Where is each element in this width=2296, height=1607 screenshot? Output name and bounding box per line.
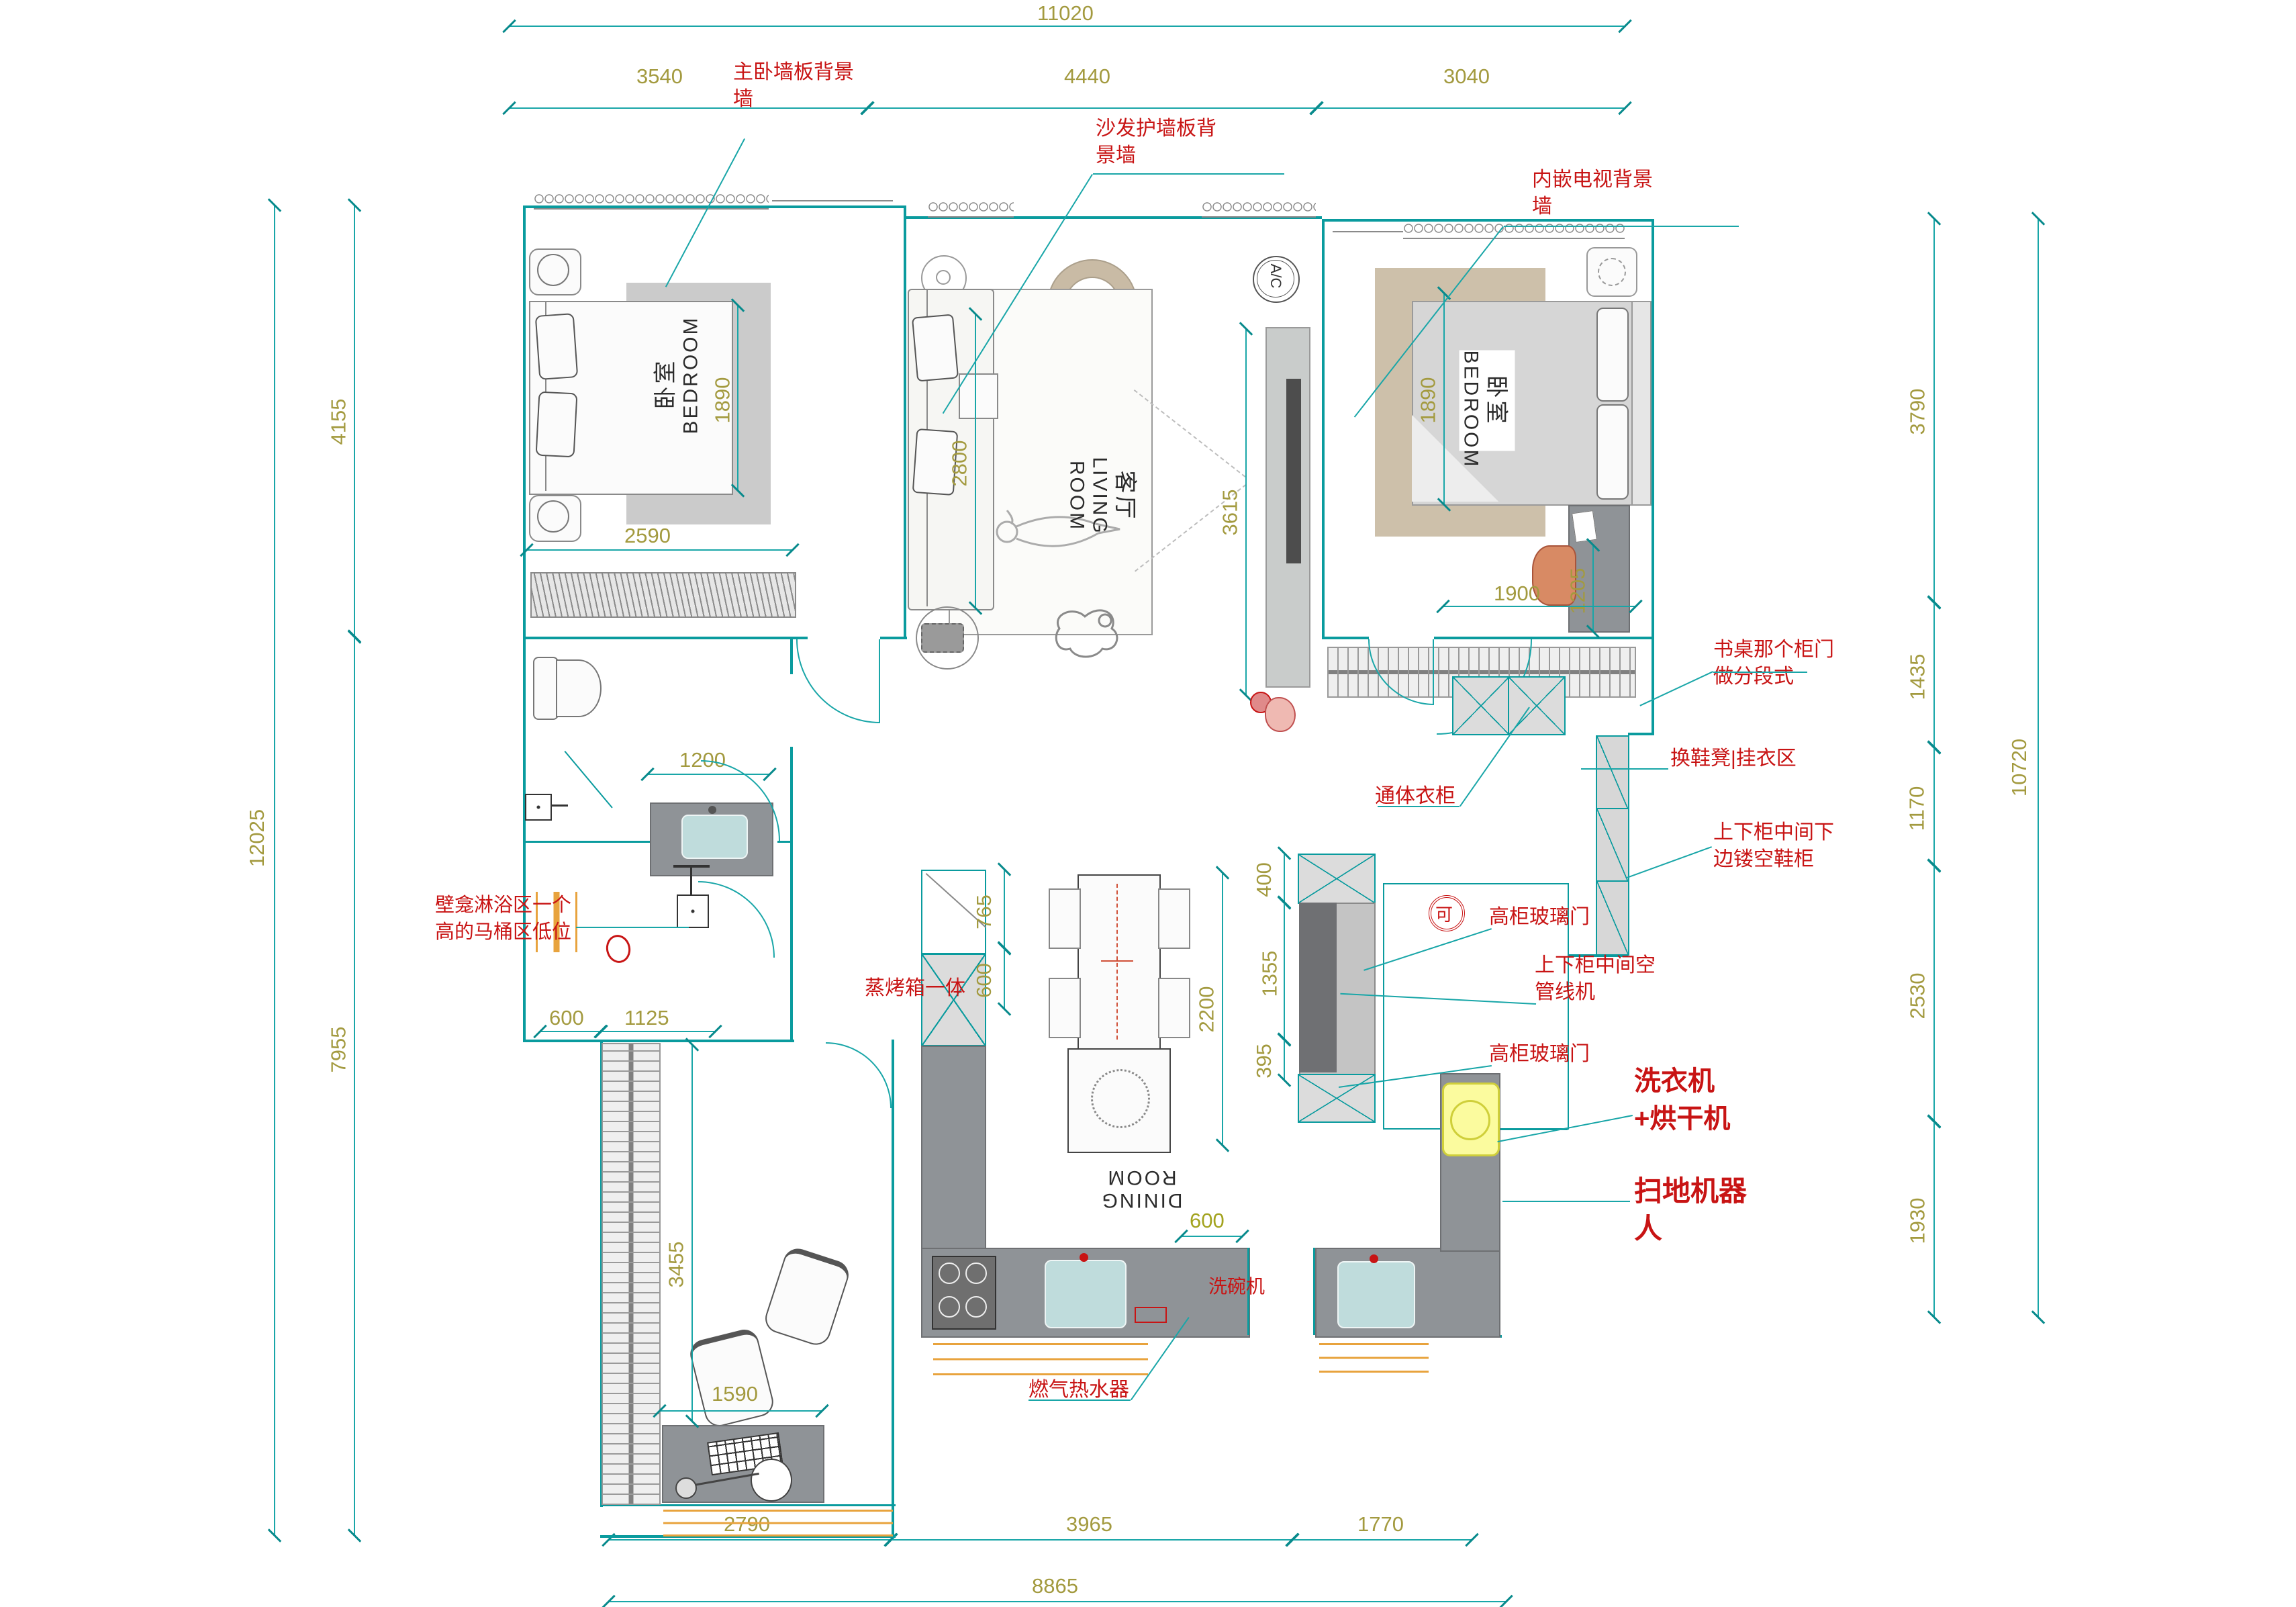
dim-10720: 10720: [2007, 739, 2031, 796]
door-arc-shower-room: [698, 881, 775, 958]
dim-3455: 3455: [664, 1242, 688, 1288]
burner: [939, 1262, 960, 1284]
leader-master-wall: [665, 138, 745, 287]
dim-line-765: [1004, 870, 1005, 948]
callout-tv-wall: 内嵌电视背景墙: [1532, 167, 1656, 220]
wall-segment: [523, 1040, 794, 1042]
sofa-pillow: [912, 314, 959, 381]
dim-395: 395: [1252, 1044, 1276, 1078]
door-arc-study: [826, 1042, 892, 1108]
pillow: [535, 313, 579, 380]
dim-line-2590: [527, 549, 792, 551]
dim-8865: 8865: [1032, 1574, 1078, 1598]
leader-underline: [1029, 1399, 1131, 1401]
tv-screen: [1286, 379, 1301, 563]
wall-segment: [523, 637, 808, 639]
leader-robot: [1502, 1201, 1630, 1202]
dim-1170: 1170: [1905, 786, 1929, 831]
dim-line-1435: [1933, 602, 1935, 747]
wall-segment: [790, 639, 793, 674]
dim-line-3615: [1245, 329, 1247, 695]
dim-line-total-top: [510, 26, 1625, 27]
dining-chair: [1049, 888, 1081, 949]
table-lamp-icon: [1598, 258, 1626, 286]
ac-text: A/C: [1267, 261, 1284, 291]
plant-icon: [1091, 1069, 1150, 1128]
shower2-arm: [690, 868, 692, 894]
pillow: [1596, 404, 1629, 500]
washing-machine-drum: [1450, 1100, 1490, 1140]
leader-underline: [1713, 672, 1807, 673]
floor-lamp: [921, 623, 964, 653]
dim-11020: 11020: [1037, 1, 1094, 26]
desk-lamp-base: [675, 1477, 697, 1499]
callout-master-wall: 主卧墙板背景墙: [733, 59, 857, 113]
room-label-bedroom2: 卧室 BEDROOM: [1460, 351, 1515, 451]
dim-line-1355: [1284, 903, 1285, 1040]
tall-cabinet-glass-top: [1298, 854, 1376, 904]
office-chair: [761, 1245, 852, 1349]
bed2-headboard: [1631, 301, 1652, 506]
dim-2590: 2590: [624, 524, 671, 548]
pillow: [1596, 308, 1629, 402]
toilet-bowl: [556, 659, 602, 717]
wall-segment: [892, 1040, 894, 1538]
dim-3040: 3040: [1443, 64, 1490, 89]
wall-segment: [777, 841, 792, 843]
callout-gas-heater: 燃气热水器: [1029, 1373, 1129, 1402]
dim-line-1170: [1933, 747, 1935, 866]
window-kitchen: [933, 1343, 1148, 1375]
shoe-cabinet-tall: [1596, 735, 1629, 811]
callout-dishwasher: 洗碗机: [1208, 1272, 1265, 1299]
dim-2530: 2530: [1905, 973, 1929, 1019]
leader-shoe-cabinet: [1626, 846, 1712, 878]
dim-1770: 1770: [1357, 1512, 1404, 1536]
ceiling-fan-hub: [936, 270, 951, 285]
dining-table: [1078, 874, 1161, 1052]
leader-underline: [1378, 806, 1460, 807]
dim-1435: 1435: [1905, 654, 1929, 700]
dim-400: 400: [1252, 862, 1276, 897]
door-arc-bathroom: [701, 760, 780, 841]
leader-desk-cabinet: [1639, 671, 1713, 706]
dim-600a: 600: [549, 1006, 584, 1030]
shoe-cabinet-tall: [1596, 808, 1629, 883]
curtain-master: [534, 192, 769, 210]
room-label-master-zh: 卧室: [647, 334, 680, 434]
shower-corner-wall: [564, 751, 612, 809]
dim-1590: 1590: [712, 1382, 758, 1406]
kitchen-sink: [1045, 1260, 1127, 1328]
room-label-master-en: BEDROOM: [680, 334, 703, 434]
kitchen-column-lower: [921, 1046, 986, 1250]
burner: [965, 1296, 987, 1318]
dim-line-1770: [1292, 1539, 1472, 1541]
dim-line-12025: [274, 205, 275, 1535]
dim-line-8865: [609, 1601, 1506, 1602]
shoe-cabinet-tall: [1596, 880, 1629, 956]
curtain-arrow: [772, 200, 893, 201]
dim-1930: 1930: [1905, 1198, 1929, 1244]
room-label-dining: DINING ROOM: [1074, 1166, 1208, 1211]
wall-segment: [1628, 733, 1654, 735]
door-leaf: [1433, 639, 1434, 704]
toilet-tank: [533, 657, 559, 720]
dim-1205: 1205: [1566, 568, 1590, 614]
callout-desk-cabinet: 书桌那个柜门做分段式: [1713, 637, 1837, 690]
door-arc-master: [796, 639, 880, 723]
balcony-sink: [1337, 1261, 1415, 1328]
dim-line-600a: [540, 1031, 601, 1032]
callout-shower-niche: 壁龛淋浴区一个高的马桶区低位: [435, 892, 577, 946]
dim-4440: 4440: [1064, 64, 1110, 89]
burner: [965, 1262, 987, 1284]
dim-600b: 600: [972, 963, 996, 998]
curtain-arrow: [1333, 231, 1403, 232]
dim-7955: 7955: [326, 1027, 350, 1073]
curtain-living-left: [928, 200, 1014, 218]
wall-segment: [904, 205, 906, 639]
dim-line-600c: [1182, 1236, 1242, 1237]
figure-red-body: [1265, 697, 1296, 732]
shoe-bench-cabinet: [1452, 676, 1510, 735]
dim-line-1590: [660, 1410, 822, 1412]
dim-3615: 3615: [1218, 490, 1242, 536]
room-label-living: 客厅 LIVING ROOM: [1065, 436, 1144, 557]
dim-4155: 4155: [326, 399, 350, 445]
wardrobe-study-hangers: [602, 1043, 661, 1505]
dim-line-395: [1284, 1040, 1285, 1080]
desk-paper: [1572, 510, 1597, 543]
room-label-master: 卧室 BEDROOM: [647, 334, 703, 434]
dim-line-600b: [1004, 948, 1005, 1009]
dim-line-7955: [354, 637, 355, 1535]
dining-chair: [1049, 978, 1081, 1038]
door-leaf: [879, 639, 880, 722]
dim-1125: 1125: [624, 1006, 669, 1030]
dim-line-400: [1284, 854, 1285, 903]
room-label-living-en: LIVING ROOM: [1065, 436, 1111, 557]
burner: [939, 1296, 960, 1318]
dim-1890b: 1890: [1416, 377, 1440, 424]
callout-bench: 换鞋凳|挂衣区: [1670, 741, 1797, 771]
dim-1900: 1900: [1494, 582, 1540, 606]
curtain-living-right: [1202, 200, 1316, 218]
leader-underline: [1093, 173, 1284, 175]
callout-glass-door-bottom: 高柜玻璃门: [1489, 1037, 1590, 1066]
dim-line-4440: [867, 107, 1317, 109]
dim-600c: 600: [1190, 1209, 1225, 1233]
desk-lamp-shade: [751, 1459, 792, 1502]
callout-glass-door-top: 高柜玻璃门: [1489, 900, 1590, 929]
floor-plan: 11020 3540 4440 3040 4155 7955 12025 379…: [0, 0, 2296, 1607]
dim-1355: 1355: [1257, 951, 1282, 997]
dim-line-1205: [1592, 545, 1594, 631]
wall-segment: [1322, 637, 1369, 639]
callout-pipe-machine: 上下柜中间空管线机: [1535, 952, 1659, 1006]
table-center-cross: [1101, 960, 1133, 962]
dim-line-3965: [891, 1539, 1292, 1541]
office-chair: [687, 1326, 777, 1429]
leader-underline: [1504, 226, 1739, 227]
shower-head-icon: [525, 794, 552, 821]
dim-line-1890b: [1443, 293, 1445, 504]
dim-line-2530: [1933, 866, 1935, 1121]
dim-line-2790: [609, 1539, 891, 1541]
pillow: [536, 392, 578, 458]
dim-line-3455: [691, 1045, 693, 1421]
shower-arm: [551, 805, 568, 807]
dim-3965: 3965: [1066, 1512, 1112, 1536]
table-centerline: [1116, 884, 1118, 1040]
wall-segment: [1652, 219, 1654, 735]
dim-12025: 12025: [245, 809, 269, 867]
wall-lamp-icon: [537, 254, 569, 286]
callout-sofa-wall: 沙发护墙板背景墙: [1096, 116, 1220, 169]
leader-shower-niche: [576, 927, 689, 928]
dim-line-1900: [1443, 606, 1635, 607]
dim-line-4155: [354, 205, 355, 637]
wall-segment: [1322, 219, 1325, 639]
callout-wardrobe-full: 通体衣柜: [1375, 779, 1455, 809]
callout-washer-dryer: 洗衣机+烘干机: [1634, 1062, 1752, 1138]
side-table: [959, 373, 998, 419]
dog-figure: [1039, 590, 1130, 670]
tall-cabinet-glass-bottom: [1298, 1074, 1376, 1123]
pipe-machine-dark: [1299, 903, 1337, 1072]
dim-line-1930: [1933, 1121, 1935, 1317]
leader-bench: [1581, 768, 1668, 770]
dim-3790: 3790: [1905, 389, 1929, 435]
dim-2800: 2800: [947, 441, 971, 487]
room-label-bedroom2-en: BEDROOM: [1460, 351, 1482, 451]
room-label-bedroom2-zh: 卧室: [1482, 351, 1515, 451]
wall-segment: [790, 747, 793, 1042]
faucet-icon: [1370, 1254, 1378, 1263]
dim-line-3040: [1317, 107, 1625, 109]
dim-line-1125: [601, 1031, 715, 1032]
window-study: [663, 1510, 893, 1536]
dish-rack-red: [1135, 1307, 1167, 1323]
dim-2200: 2200: [1194, 986, 1218, 1033]
dim-765: 765: [972, 894, 996, 929]
faucet-icon: [1080, 1253, 1088, 1262]
dim-line-3790: [1933, 219, 1935, 602]
dining-chair: [1158, 888, 1190, 949]
wall-segment: [523, 205, 526, 639]
shower-head-icon: [677, 894, 709, 928]
curtain-bedroom2: [1403, 222, 1625, 239]
dim-1890a: 1890: [710, 377, 734, 424]
callout-steam-oven: 蒸烤箱一体: [865, 971, 965, 1001]
dining-chair: [1158, 978, 1190, 1038]
dim-line-2200: [1222, 873, 1223, 1145]
window-balcony: [1319, 1343, 1429, 1373]
callout-robot-vacuum: 扫地机器人: [1634, 1173, 1755, 1248]
wall-segment: [880, 637, 907, 639]
room-label-living-zh: 客厅: [1111, 436, 1144, 557]
dim-3540: 3540: [636, 64, 683, 89]
callout-shoe-cabinet: 上下柜中间下边镂空鞋柜: [1713, 819, 1837, 873]
wall-lamp-icon: [537, 500, 569, 533]
ok-circle-text: 可: [1429, 901, 1460, 926]
toilet-marker-red: [604, 933, 633, 966]
dim-line-1890a: [737, 306, 738, 490]
dim-line-10720: [2038, 219, 2039, 1317]
wardrobe-master: [530, 572, 796, 618]
